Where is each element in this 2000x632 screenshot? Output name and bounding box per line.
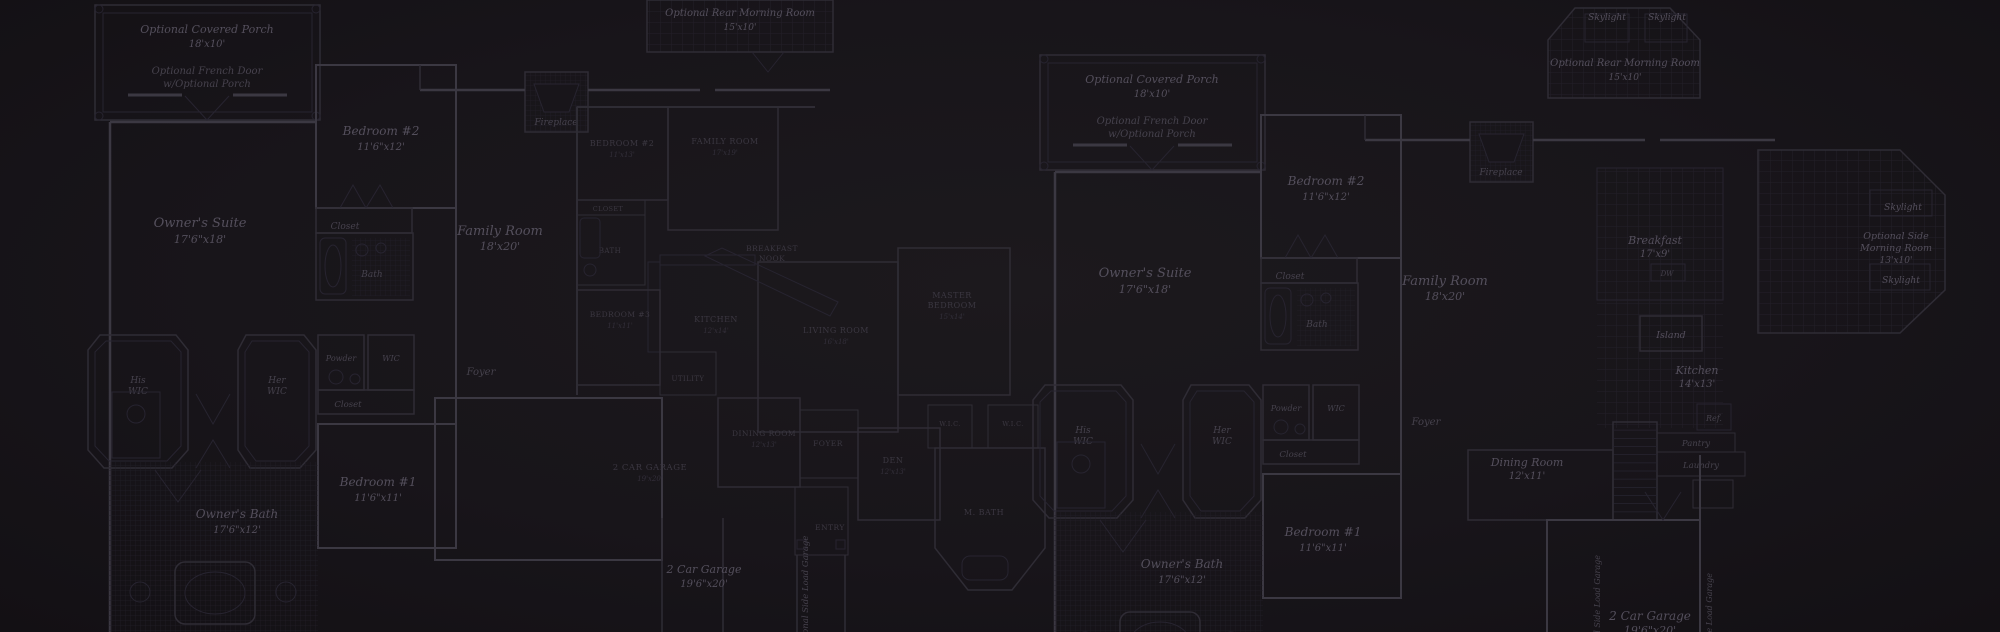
porch-post [1257,55,1265,63]
sink [350,374,360,384]
island-label: Island [1655,330,1686,341]
kitchen-caps-label: KITCHEN [694,315,738,324]
side-load-garage-label: Optional Side Load Garage [1593,555,1602,632]
wic-caps-label: W.I.C. [939,420,960,428]
room-label: WIC [1212,437,1232,447]
owners-suite-dims: 17'6"x18' [174,233,226,246]
room-label: 15'x10' [724,23,757,33]
skylight-label: Skylight [1648,13,1686,23]
door-swing [752,52,784,72]
room-label: 19'6"x20' [680,579,728,590]
pantry-label: Pantry [1681,439,1710,449]
family-room-label: Family Room [456,224,543,239]
bedroom1-dims: 11'6"x11' [1299,543,1347,554]
french-door-label: Optional French Door [152,66,264,77]
porch-label: Optional Covered Porch [140,23,273,36]
bedroom2-dims: 11'6"x12' [357,142,405,153]
utility-outline [660,352,716,395]
breakfast-label: Breakfast [1627,234,1682,247]
rear-morning-label: Optional Rear Morning Room [665,8,815,19]
blueprint-background: Optional Covered Porch18'x10'Optional Fr… [0,0,2000,632]
garage-caps-label: 2 CAR GARAGE [613,463,687,473]
closet-label: Closet [334,400,362,410]
door-swing [185,96,229,120]
master-bedroom-label: MASTER [932,291,972,300]
wall-rect [318,390,414,414]
skylight-label: Skylight [1884,203,1922,213]
den-label: DEN [883,456,904,465]
garage-outline [435,398,662,560]
closet-doors [340,185,393,208]
ref-label: Ref. [1705,414,1722,423]
tub [962,556,1008,580]
porch-label: Optional Covered Porch [1085,73,1218,86]
entry-label: ENTRY [815,523,845,532]
her-wic-label: Her [1212,426,1231,436]
wall-poly [245,341,309,461]
closet-doors [1285,235,1338,258]
wall-poly [95,341,181,461]
wall-poly [1190,391,1254,511]
room-label: 15'x14' [939,313,965,321]
porch-post [95,5,103,13]
skylight-label: Skylight [1588,13,1626,23]
bedroom2-label: Bedroom #2 [1287,174,1365,188]
his-wic-label: His [129,376,146,386]
dw-label: DW [1660,270,1675,278]
her-wic-outline [238,335,316,468]
door-swing [196,394,230,424]
side-load-garage-label: Optional Side Load Garage [1705,573,1714,632]
her-wic-label: Her [267,376,286,386]
room-label: 12'x13' [751,441,777,449]
master-bath-label: M. BATH [964,508,1004,517]
stairs [1613,422,1657,520]
floorplan-collage: Optional Covered Porch18'x10'Optional Fr… [0,0,2000,632]
sink [1295,424,1305,434]
wic-caps-label: W.I.C. [1002,420,1023,428]
side-load-garage-label: Optional Side Load Garage [801,536,811,632]
bedroom2-caps-label: BEDROOM #2 [590,139,655,148]
floorplan-right: Optional Covered Porch18'x10'Optional Fr… [1033,8,1945,632]
bath-label: Bath [1305,320,1327,330]
closet-label: Closet [1276,272,1305,282]
vanity [112,392,160,458]
kitchen-label: Kitchen [1675,364,1719,377]
master-bedroom-outline [898,248,1010,395]
room-label: 17'x19' [712,149,738,157]
porch-dims: 18'x10' [1134,89,1171,100]
bedroom2-dims: 11'6"x12' [1302,192,1350,203]
garage-label: 2 Car Garage [1608,609,1691,623]
bath-tile [1297,288,1355,346]
living-room-outline [758,262,898,432]
sink [1072,455,1090,473]
porch-dims: 18'x10' [189,39,226,50]
toilet [1274,420,1288,434]
foyer-label: Foyer [1411,417,1442,428]
porch-post [312,5,320,13]
fixture-ellipse [325,245,341,287]
powder-label: Powder [325,354,358,363]
room-label: 11'x11' [607,322,633,330]
master-bath-outline [935,448,1045,590]
door-swing [1130,146,1174,170]
family-room-outline [668,107,778,230]
family-room-dims: 18'x20' [480,240,520,253]
fireplace-label: Fireplace [1478,168,1522,178]
fireplace-label: Fireplace [533,118,577,128]
his-wic-label: His [1074,426,1091,436]
room-label: 14'x13' [1679,379,1716,390]
tub [580,218,600,258]
bedroom1-label: Bedroom #1 [339,475,417,489]
room-label: 12'x13' [880,468,906,476]
owners-suite-dims: 17'6"x18' [1119,283,1171,296]
toilet [329,370,343,384]
owners-bath-tile [108,462,318,632]
living-room-label: LIVING ROOM [803,326,869,335]
room-label: NOOK [759,254,785,263]
family-room-dims: 18'x20' [1425,290,1465,303]
wall-poly [1040,391,1126,511]
her-wic-outline [1183,385,1261,518]
room-label: BEDROOM [928,301,977,310]
owners-bath-tile [1053,512,1263,632]
his-wic-outline [1033,385,1133,518]
closet-caps-label: CLOSET [593,205,624,213]
closet-label: Closet [1279,450,1307,460]
french-door-label: Optional French Door [1097,116,1209,127]
room-label: Morning Room [1859,243,1932,254]
family-room-caps-label: FAMILY ROOM [691,137,758,146]
room-label: 12'x11' [1509,471,1546,482]
porch-post [1040,55,1048,63]
vanity [1057,442,1105,508]
breakfast-nook-label: BREAKFAST [746,244,798,253]
utility-label: UTILITY [672,375,705,383]
room-label: 12'x14' [703,327,729,335]
french-door-label2: w/Optional Porch [1108,129,1196,140]
his-wic-outline [88,335,188,468]
rear-morning-label: Optional Rear Morning Room [1550,58,1700,69]
foyer-label: Foyer [466,367,497,378]
room-label: 17'x9' [1640,249,1670,260]
room-label: 19'x20' [637,475,663,483]
bedroom2-label: Bedroom #2 [342,124,420,138]
owners-suite-label: Owner's Suite [1099,266,1192,281]
bath-tile [352,238,410,296]
porch-post [95,112,103,120]
tub [320,238,346,294]
foyer-caps-label: FOYER [813,439,843,448]
owners-bath-label: Owner's Bath [196,507,278,521]
wic-label: WIC [1327,404,1345,413]
bedroom1-dims: 11'6"x11' [354,493,402,504]
owners-bath-dims: 17'6"x12' [213,525,261,536]
room-label: 19'6"x20' [1624,624,1676,632]
room-label: WIC [267,387,287,397]
room-label: 16'x18' [823,338,849,346]
toilet [584,264,596,276]
side-morning-label: Optional Side [1863,231,1929,242]
bath-caps-label: BATH [599,247,621,255]
owners-bath-dims: 17'6"x12' [1158,575,1206,586]
door-swing [1645,492,1681,520]
room-label: 15'x10' [1609,73,1642,83]
porch-post [1040,162,1048,170]
owners-bath-label: Owner's Bath [1141,557,1223,571]
fixture-ellipse [1270,295,1286,337]
wic-label: WIC [382,354,400,363]
wall-rect [1263,440,1359,464]
garage-italic-label: 2 Car Garage [666,563,742,576]
entry-column [836,540,845,549]
closet-label: Closet [331,222,360,232]
family-room-label: Family Room [1401,274,1488,289]
owners-suite-label: Owner's Suite [154,216,247,231]
skylight-label: Skylight [1882,276,1920,286]
dining-room-caps-label: DINING ROOM [732,429,796,438]
tub [1265,288,1291,344]
french-door-label2: w/Optional Porch [163,79,251,90]
sink [127,405,145,423]
counter [648,262,660,352]
door-swing [1141,444,1175,474]
room-label: 11'x13' [609,151,635,159]
bedroom1-label: Bedroom #1 [1284,525,1362,539]
dining-label: Dining Room [1490,456,1564,469]
powder-label: Powder [1270,404,1303,413]
bedroom3-label: BEDROOM #3 [590,310,651,319]
bath-label: Bath [360,270,382,280]
